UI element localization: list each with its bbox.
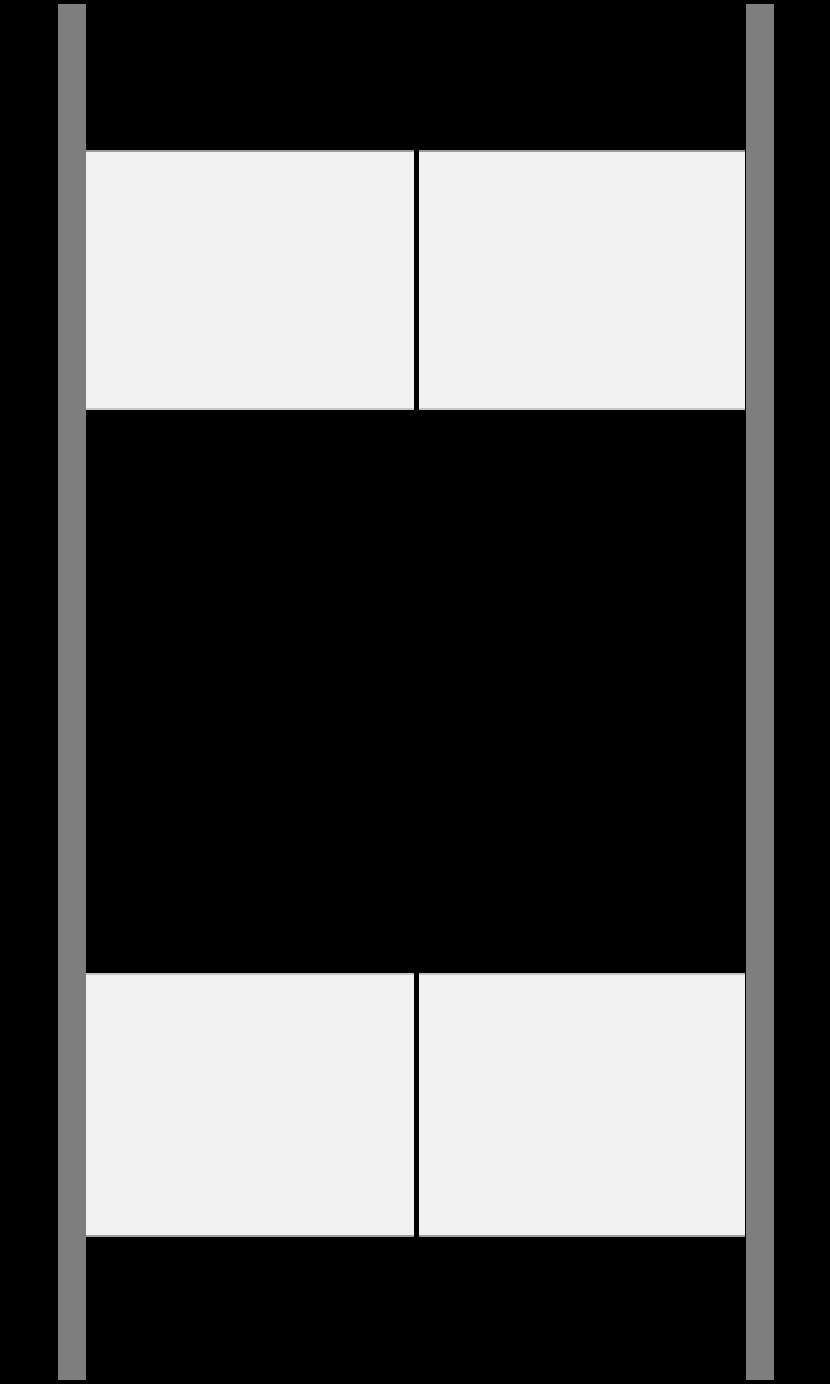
page-background — [0, 0, 830, 1384]
right-rail — [746, 4, 774, 1380]
panel-top-left[interactable] — [86, 150, 414, 410]
panel-bottom-left[interactable] — [86, 973, 414, 1237]
panel-bottom-right[interactable] — [419, 973, 745, 1237]
left-rail — [58, 4, 86, 1380]
panel-top-right[interactable] — [419, 150, 745, 410]
